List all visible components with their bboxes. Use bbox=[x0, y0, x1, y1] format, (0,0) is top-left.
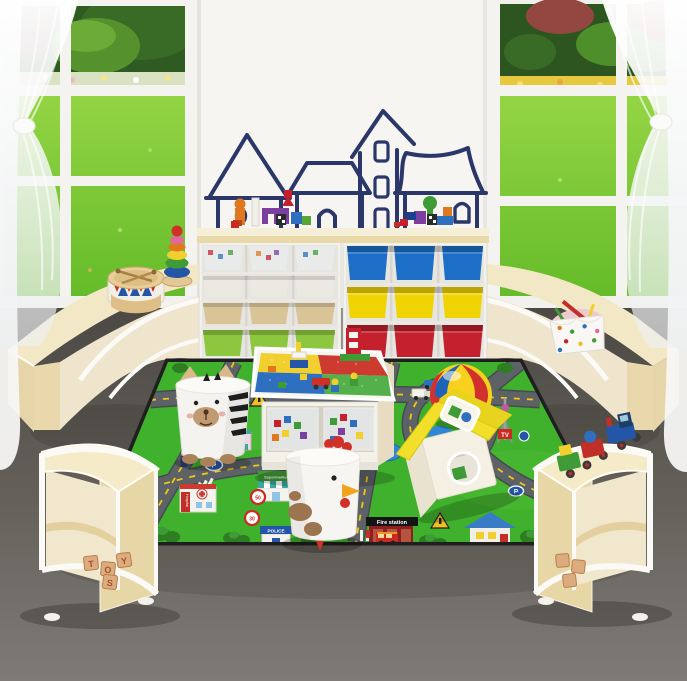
bins-row-clear bbox=[203, 246, 335, 270]
hospital: Hospital bbox=[180, 484, 216, 512]
fire-station: Fire station bbox=[366, 517, 418, 546]
tv-label: TV bbox=[501, 433, 509, 439]
playroom-photo: TV Hospital BANK Su bbox=[0, 0, 687, 681]
police-label: POLICE bbox=[267, 528, 284, 533]
curtain-tieback-left bbox=[13, 118, 35, 134]
speed-sign-30: 30 bbox=[245, 511, 259, 525]
speed-sign-50: 50 bbox=[251, 490, 265, 504]
chicken-wattle bbox=[340, 498, 350, 508]
bins-row-white bbox=[203, 276, 335, 297]
svg-text:50: 50 bbox=[255, 495, 261, 501]
svg-text:O: O bbox=[104, 565, 112, 576]
chicken-stool bbox=[282, 436, 362, 553]
shelf-right-top bbox=[343, 228, 489, 237]
bins-row-yellow bbox=[347, 287, 483, 318]
shelf-left-top bbox=[197, 228, 343, 237]
bins-row-tan bbox=[203, 303, 335, 324]
svg-text:30: 30 bbox=[249, 516, 255, 522]
roundabout-sign bbox=[519, 431, 529, 441]
table-top-baseplates bbox=[255, 353, 391, 396]
curtain-tieback-right bbox=[650, 114, 672, 130]
drum bbox=[108, 267, 164, 313]
table-bin-left bbox=[268, 408, 318, 450]
svg-text:S: S bbox=[106, 578, 113, 589]
hospital-label: Hospital bbox=[185, 494, 189, 507]
tiger-stool bbox=[175, 364, 251, 471]
chicken-eye bbox=[331, 475, 336, 480]
fire-hydrant bbox=[366, 530, 370, 538]
fire-station-label: Fire station bbox=[377, 520, 408, 526]
storage-shelf-right bbox=[339, 228, 491, 371]
playroom-scene: TV Hospital BANK Su bbox=[0, 0, 687, 681]
bins-row-blue bbox=[347, 246, 483, 280]
